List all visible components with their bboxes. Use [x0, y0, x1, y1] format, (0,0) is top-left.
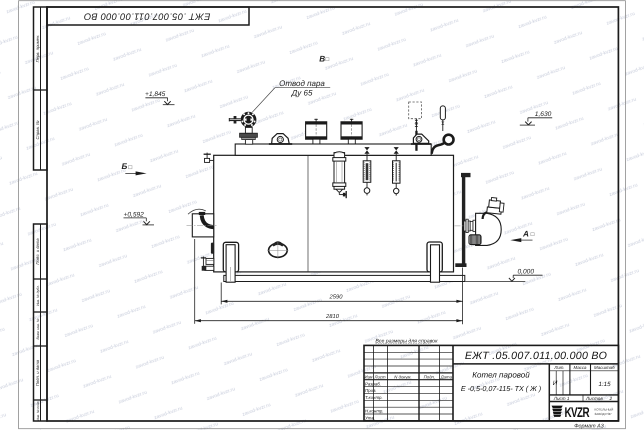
svg-text:0,000: 0,000 — [518, 269, 535, 276]
svg-text:А: А — [522, 229, 529, 238]
svg-text:Ду 65: Ду 65 — [291, 88, 313, 97]
svg-text:N докум.: N докум. — [394, 374, 411, 379]
svg-text:1:15: 1:15 — [598, 381, 611, 388]
svg-text:ЕЖТ .05.007.011.00.000 ВО: ЕЖТ .05.007.011.00.000 ВО — [465, 350, 607, 362]
svg-text:Взам. инв. №: Взам. инв. № — [36, 318, 40, 339]
svg-text:Пров.: Пров. — [365, 388, 377, 393]
svg-text:И: И — [553, 380, 558, 387]
svg-text:Е -0,5-0,07-115- ТХ ( Ж ): Е -0,5-0,07-115- ТХ ( Ж ) — [461, 384, 541, 393]
svg-text:1,630: 1,630 — [535, 111, 552, 118]
svg-text:Лит.: Лит. — [553, 365, 564, 370]
svg-text:Разраб.: Разраб. — [365, 381, 381, 386]
svg-text:Инв. № дубл.: Инв. № дубл. — [36, 285, 40, 306]
svg-text:Т.контр.: Т.контр. — [365, 395, 383, 400]
svg-text:+1,845: +1,845 — [145, 91, 166, 98]
svg-text:ЕЖТ .05.007.011.00.000 ВО: ЕЖТ .05.007.011.00.000 ВО — [83, 12, 210, 23]
svg-text:Подп. и дата: Подп. и дата — [35, 359, 40, 386]
svg-text:Лист: Лист — [374, 374, 386, 379]
svg-text:Н.контр.: Н.контр. — [365, 409, 384, 414]
svg-text:Б: Б — [122, 162, 128, 171]
svg-text:Листов: Листов — [585, 396, 603, 401]
svg-text:Масштаб: Масштаб — [594, 365, 615, 370]
svg-text:Изм: Изм — [365, 374, 373, 379]
svg-text:KVZR: KVZR — [565, 404, 590, 420]
svg-text:Подп.: Подп. — [424, 374, 435, 379]
svg-text:Масса: Масса — [574, 365, 588, 370]
svg-text:Отвод пара: Отвод пара — [279, 79, 325, 88]
svg-text:+0,592: +0,592 — [124, 211, 145, 218]
svg-text:Лист 1: Лист 1 — [553, 396, 570, 401]
svg-text:Инв. № подл.: Инв. № подл. — [36, 401, 40, 421]
svg-text:ЗАВОД РЭР: ЗАВОД РЭР — [595, 412, 612, 416]
svg-text:2590: 2590 — [329, 294, 344, 301]
svg-text:Справ. №: Справ. № — [35, 120, 40, 139]
svg-text:Дата: Дата — [440, 374, 453, 379]
svg-text:Утв.: Утв. — [365, 415, 375, 420]
svg-text:Формат А3: Формат А3 — [574, 424, 604, 430]
svg-text:2: 2 — [609, 396, 613, 401]
svg-text:Перв. примен.: Перв. примен. — [35, 35, 40, 63]
svg-text:В: В — [319, 54, 325, 63]
svg-text:Котел паровой: Котел паровой — [472, 371, 530, 380]
svg-text:Подп. и дата: Подп. и дата — [35, 238, 40, 265]
svg-text:2810: 2810 — [325, 313, 340, 320]
